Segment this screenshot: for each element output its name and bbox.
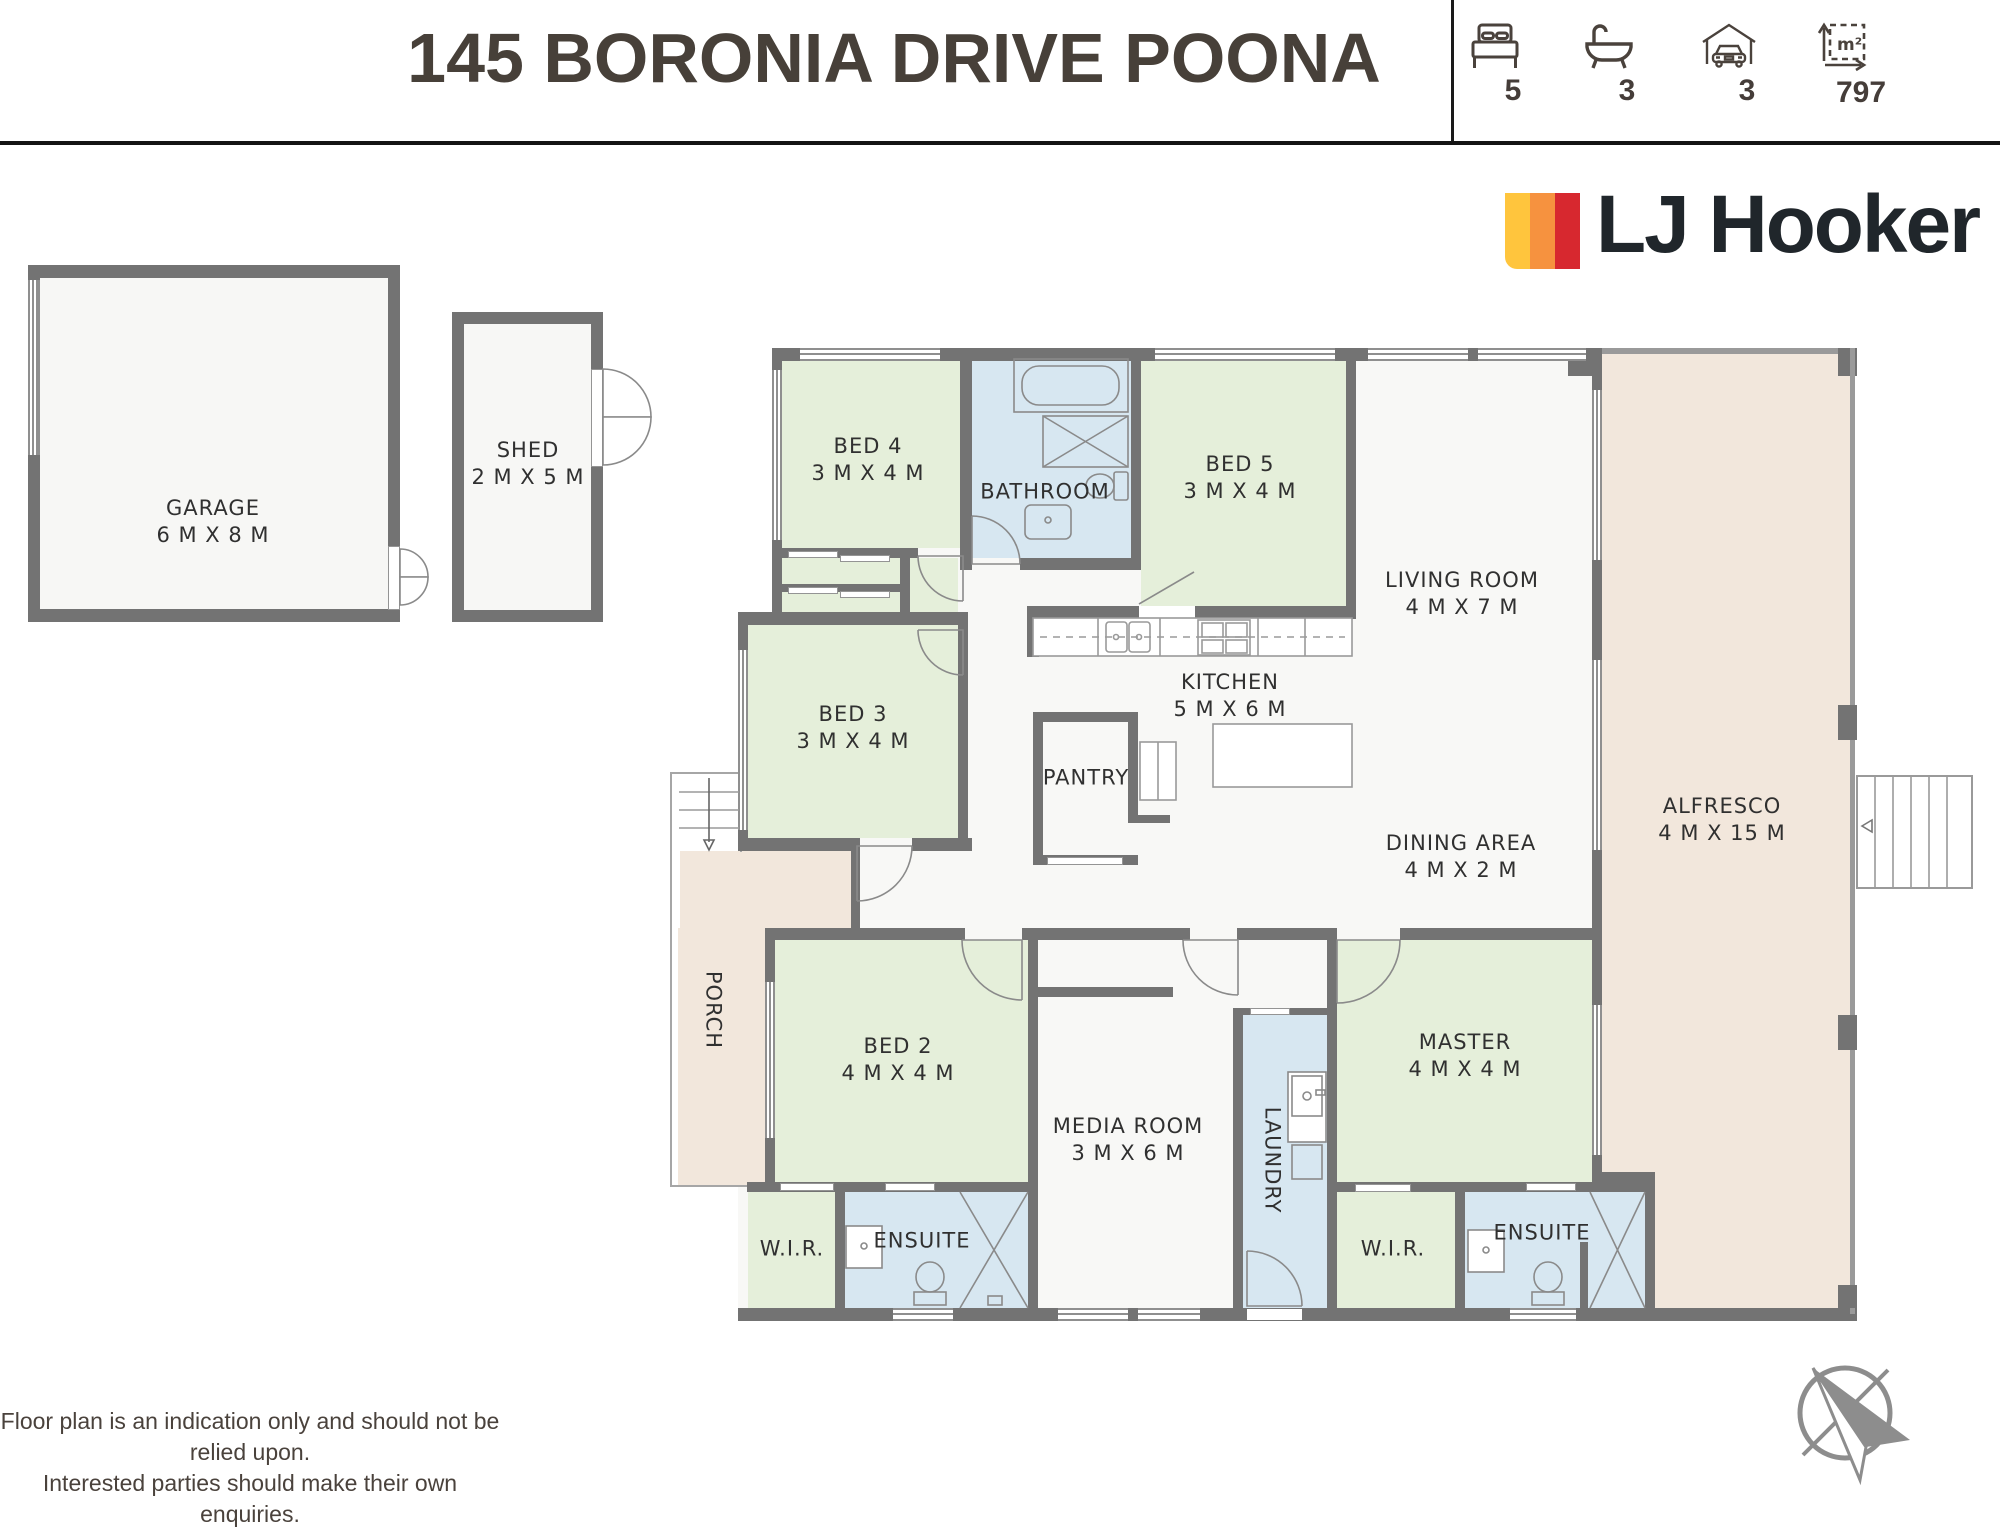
bed3-label: BED 33 M X 4 M — [796, 701, 909, 755]
shed-label: SHED2 M X 5 M — [471, 437, 584, 491]
kitchen-label: KITCHEN5 M X 6 M — [1173, 669, 1286, 723]
ensuite-left-label: ENSUITE — [874, 1228, 971, 1255]
alfresco-label: ALFRESCO4 M X 15 M — [1658, 793, 1785, 847]
porch-stairs — [679, 778, 739, 850]
ensuite-right-label: ENSUITE — [1494, 1220, 1591, 1247]
bed5-label: BED 53 M X 4 M — [1183, 451, 1296, 505]
bed4-label: BED 43 M X 4 M — [811, 433, 924, 487]
kitchen-island — [1213, 724, 1352, 787]
disclaimer-line2: Interested parties should make their own… — [0, 1468, 500, 1530]
pantry-label: PANTRY — [1043, 765, 1129, 792]
porch-label: PORCH — [700, 971, 727, 1049]
plan-linework — [0, 0, 2000, 1500]
laundry-fixtures — [1288, 1072, 1326, 1179]
disclaimer-line1: Floor plan is an indication only and sho… — [0, 1406, 500, 1468]
pantry-cabinet — [1140, 742, 1176, 800]
bed2-label: BED 24 M X 4 M — [841, 1033, 954, 1087]
living-label: LIVING ROOM4 M X 7 M — [1385, 567, 1539, 621]
dining-label: DINING AREA4 M X 2 M — [1386, 830, 1537, 884]
kitchen-bench — [1033, 618, 1352, 656]
bathroom-fixtures — [1014, 359, 1128, 539]
alfresco-stairs — [1857, 776, 1972, 888]
master-label: MASTER4 M X 4 M — [1408, 1029, 1521, 1083]
bathroom-label: BATHROOM — [980, 479, 1110, 506]
disclaimer: Floor plan is an indication only and sho… — [0, 1406, 500, 1530]
wir-right-label: W.I.R. — [1361, 1236, 1425, 1263]
laundry-label: LAUNDRY — [1259, 1107, 1286, 1214]
ensuite-right-fixtures — [1468, 1192, 1645, 1308]
wir-left-label: W.I.R. — [760, 1236, 824, 1263]
garage-label: GARAGE6 M X 8 M — [156, 495, 269, 549]
media-label: MEDIA ROOM3 M X 6 M — [1053, 1113, 1204, 1167]
compass-icon — [1800, 1368, 1910, 1480]
